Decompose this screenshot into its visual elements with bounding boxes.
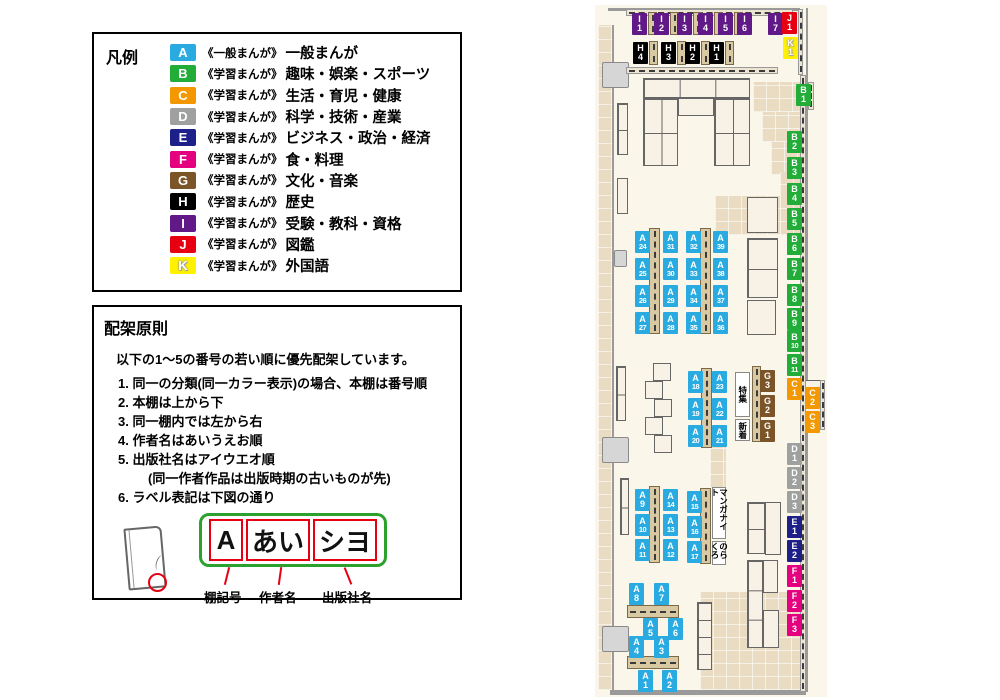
legend-category: 《学習まんが》 (202, 236, 283, 252)
shelf-label-A22: A22 (712, 398, 727, 420)
shelf-label-B6: B6 (787, 233, 802, 255)
legend-label: 外国語 (286, 255, 330, 276)
door (602, 437, 629, 463)
shelf-label-A18: A18 (688, 371, 703, 393)
legend-chip-A: A (170, 44, 196, 61)
shelf-label-A6: A6 (668, 618, 683, 640)
wall-shelf (626, 67, 778, 74)
legend-item-B: B《学習まんが》趣味・娯楽・スポーツ (170, 63, 431, 84)
shelf-label-D1: D1 (787, 443, 802, 465)
table-block (678, 98, 714, 116)
table-block (763, 610, 779, 648)
legend-category: 《学習まんが》 (202, 151, 283, 167)
legend-label: 生活・育児・健康 (286, 85, 402, 106)
table-block (654, 399, 672, 417)
rule-item: 1. 同一の分類(同一カラー表示)の場合、本棚は番号順 (118, 374, 450, 393)
shelf-label-I5: I5 (718, 13, 733, 35)
shelf-label-I3: I3 (677, 13, 692, 35)
legend-chip-E: E (170, 129, 196, 146)
caption-author: 作者名 (259, 587, 297, 606)
sign-新着: 新着 (735, 419, 750, 441)
legend-item-I: I《学習まんが》受験・教科・資格 (170, 212, 431, 233)
shelf-label-A38: A38 (713, 258, 728, 280)
shelf-label-A30: A30 (663, 258, 678, 280)
shelf-label-A10: A10 (635, 514, 650, 536)
shelf-label-A4: A4 (629, 636, 644, 658)
legend-title: 凡例 (106, 44, 138, 68)
bookshelf (649, 486, 660, 563)
rule-item: 2. 本棚は上から下 (118, 393, 450, 412)
legend-category: 《学習まんが》 (202, 87, 283, 103)
shelf-label-B5: B5 (787, 208, 802, 230)
legend-category: 《一般まんが》 (202, 45, 283, 61)
legend-chip-I: I (170, 215, 196, 232)
table-block (747, 197, 778, 233)
door (602, 626, 629, 652)
table-block (653, 363, 671, 381)
legend-chip-B: B (170, 65, 196, 82)
legend-category: 《学習まんが》 (202, 66, 283, 82)
shelf-label-A31: A31 (663, 231, 678, 253)
shelf-label-A24: A24 (635, 231, 650, 253)
shelf-label-A37: A37 (713, 285, 728, 307)
shelf-label-D2: D2 (787, 467, 802, 489)
shelf-label-C3: C3 (805, 411, 820, 433)
legend-category: 《学習まんが》 (202, 130, 283, 146)
label-publisher: シヨ (313, 519, 377, 561)
shelf-label-B4: B4 (787, 183, 802, 205)
label-plate: A あい シヨ (199, 513, 387, 567)
shelf-label-A25: A25 (635, 258, 650, 280)
shelf-label-A35: A35 (686, 312, 701, 334)
caption-publisher: 出版社名 (322, 587, 372, 606)
caption-shelf-code: 棚記号 (204, 587, 242, 606)
legend-item-C: C《学習まんが》生活・育児・健康 (170, 85, 431, 106)
label-position-ring (148, 573, 167, 592)
legend-chip-J: J (170, 236, 196, 253)
shelf-label-A13: A13 (663, 514, 678, 536)
shelving-rules-panel: 配架原則 以下の1〜5の番号の若い順に優先配架しています。 1. 同一の分類(同… (92, 305, 462, 600)
shelf-label-H1: H1 (709, 42, 724, 64)
shelf-label-G3: G3 (760, 370, 775, 392)
bookshelf (649, 228, 660, 334)
legend-item-K: K《学習まんが》外国語 (170, 255, 431, 276)
label-author: あい (246, 519, 310, 561)
rule-item: 3. 同一棚内では左から右 (118, 412, 450, 431)
sign-特集: 特集 (735, 372, 750, 417)
rules-list: 1. 同一の分類(同一カラー表示)の場合、本棚は番号順2. 本棚は上から下3. … (118, 374, 450, 507)
door (602, 62, 629, 88)
shelf-label-A36: A36 (713, 312, 728, 334)
legend-chip-G: G (170, 172, 196, 189)
table-block (714, 98, 750, 166)
table-block (747, 238, 778, 298)
legend-chip-K: K (170, 257, 196, 274)
shelf-label-H3: H3 (661, 42, 676, 64)
table-block (620, 478, 629, 535)
shelf-label-I7: I7 (768, 13, 783, 35)
shelf-label-F1: F1 (787, 565, 802, 587)
floor-path (753, 82, 800, 112)
shelf-label-C2: C2 (805, 387, 820, 409)
legend-item-J: J《学習まんが》図鑑 (170, 234, 431, 255)
legend-chip-D: D (170, 108, 196, 125)
table-block (643, 78, 750, 98)
shelf-label-B10: B10 (787, 330, 802, 352)
rule-item-note: (同一作者作品は出版時期の古いものが先) (148, 469, 450, 488)
shelf-label-B9: B9 (787, 308, 802, 330)
legend-label: 歴史 (286, 191, 315, 212)
legend-label: 図鑑 (286, 234, 315, 255)
shelf-label-A26: A26 (635, 285, 650, 307)
table-block (645, 381, 663, 399)
legend-item-A: A《一般まんが》一般まんが (170, 42, 431, 63)
shelf-label-A19: A19 (688, 398, 703, 420)
legend-chip-F: F (170, 151, 196, 168)
shelf-label-K1: K1 (783, 37, 798, 59)
legend-item-H: H《学習まんが》歴史 (170, 191, 431, 212)
door (614, 250, 627, 267)
shelf-label-B1: B1 (796, 84, 811, 106)
shelf-label-A1: A1 (638, 670, 653, 692)
shelf-label-A17: A17 (687, 541, 702, 563)
leader-line (344, 567, 353, 584)
rule-item: 5. 出版社名はアイウエオ順 (118, 450, 450, 469)
leader-line (224, 567, 230, 585)
shelf-label-E2: E2 (787, 540, 802, 562)
legend-label: 文化・音楽 (286, 170, 359, 191)
legend-label: 科学・技術・産業 (286, 106, 402, 127)
sign-のらくろ: のらくろ (712, 541, 726, 565)
shelf-label-H2: H2 (685, 42, 700, 64)
label-shelf-code: A (209, 519, 243, 561)
wall (806, 8, 808, 692)
legend-category: 《学習まんが》 (202, 194, 283, 210)
shelf-label-A16: A16 (687, 516, 702, 538)
table-block (747, 300, 776, 335)
shelf-label-A15: A15 (687, 491, 702, 513)
table-block (747, 502, 765, 554)
legend-category: 《学習まんが》 (202, 172, 283, 188)
legend-category: 《学習まんが》 (202, 258, 283, 274)
floor-map: 特集新着マンガナイトのらくろI1I2I3I4I5I6I7J1K1H4H3H2H1… (595, 5, 827, 697)
legend-item-E: E《学習まんが》ビジネス・政治・経済 (170, 127, 431, 148)
table-block (645, 417, 663, 435)
shelf-label-I4: I4 (698, 13, 713, 35)
shelf-label-A8: A8 (629, 583, 644, 605)
shelf-label-A2: A2 (662, 670, 677, 692)
legend-label: 一般まんが (286, 42, 359, 63)
shelf-label-C1: C1 (787, 378, 802, 400)
legend-panel: 凡例 A《一般まんが》一般まんがB《学習まんが》趣味・娯楽・スポーツC《学習まん… (92, 32, 462, 292)
shelf-label-A32: A32 (686, 231, 701, 253)
shelf-label-D3: D3 (787, 491, 802, 513)
shelf-label-G2: G2 (760, 395, 775, 417)
shelf-label-A21: A21 (712, 425, 727, 447)
table-block (763, 560, 778, 593)
sign-マンガナイト: マンガナイト (712, 487, 726, 539)
shelf-label-I6: I6 (737, 13, 752, 35)
shelf-label-A29: A29 (663, 285, 678, 307)
shelf-label-A12: A12 (663, 539, 678, 561)
shelf-label-A33: A33 (686, 258, 701, 280)
shelf-label-H4: H4 (633, 42, 648, 64)
shelf-label-F2: F2 (787, 590, 802, 612)
table-block (654, 435, 672, 453)
shelf-label-F3: F3 (787, 614, 802, 636)
shelf-label-E1: E1 (787, 516, 802, 538)
shelf-label-A27: A27 (635, 312, 650, 334)
rule-item: 4. 作者名はあいうえお順 (118, 431, 450, 450)
legend-label: ビジネス・政治・経済 (286, 127, 431, 148)
shelf-label-B8: B8 (787, 284, 802, 306)
floor-path (598, 25, 613, 690)
wall-shelf (798, 9, 803, 75)
shelf-label-A28: A28 (663, 312, 678, 334)
bookshelf (725, 41, 734, 65)
legend-label: 趣味・娯楽・スポーツ (286, 63, 431, 84)
shelf-label-A20: A20 (688, 425, 703, 447)
table-block (616, 366, 626, 421)
shelf-label-A9: A9 (635, 489, 650, 511)
legend-category: 《学習まんが》 (202, 215, 283, 231)
legend-category: 《学習まんが》 (202, 109, 283, 125)
label-example-figure: A あい シヨ 棚記号 作者名 出版社名 (104, 511, 450, 621)
table-block (617, 103, 628, 155)
table-block (697, 602, 712, 670)
rules-title: 配架原則 (104, 315, 450, 339)
shelf-label-A14: A14 (663, 489, 678, 511)
shelf-label-J1: J1 (782, 12, 797, 34)
table-block (643, 98, 678, 166)
bookshelf (700, 228, 711, 334)
bookshelf (627, 605, 679, 618)
legend-item-G: G《学習まんが》文化・音楽 (170, 170, 431, 191)
legend-item-D: D《学習まんが》科学・技術・産業 (170, 106, 431, 127)
table-block (765, 502, 781, 555)
shelf-label-A3: A3 (654, 636, 669, 658)
legend-label: 受験・教科・資格 (286, 213, 402, 234)
wall-shelf (820, 380, 825, 430)
shelf-label-I2: I2 (654, 13, 669, 35)
shelf-label-A23: A23 (712, 371, 727, 393)
bookshelf (649, 41, 658, 65)
legend-chip-C: C (170, 87, 196, 104)
shelf-label-B3: B3 (787, 157, 802, 179)
rules-intro: 以下の1〜5の番号の若い順に優先配架しています。 (116, 349, 450, 368)
legend-rows: A《一般まんが》一般まんがB《学習まんが》趣味・娯楽・スポーツC《学習まんが》生… (170, 42, 431, 276)
legend-label: 食・料理 (286, 149, 344, 170)
legend-item-F: F《学習まんが》食・料理 (170, 148, 431, 169)
shelf-label-B7: B7 (787, 258, 802, 280)
rule-item: 6. ラベル表記は下図の通り (118, 488, 450, 507)
legend-chip-H: H (170, 193, 196, 210)
shelf-label-I1: I1 (632, 13, 647, 35)
table-block (747, 560, 763, 648)
leader-line (278, 567, 282, 585)
shelf-label-A39: A39 (713, 231, 728, 253)
shelf-label-A7: A7 (654, 583, 669, 605)
shelf-label-A34: A34 (686, 285, 701, 307)
table-block (617, 178, 628, 214)
shelf-label-B11: B11 (787, 354, 802, 376)
wall (612, 25, 614, 692)
shelf-label-G1: G1 (760, 420, 775, 442)
shelf-label-A11: A11 (635, 539, 650, 561)
shelf-label-B2: B2 (787, 131, 802, 153)
